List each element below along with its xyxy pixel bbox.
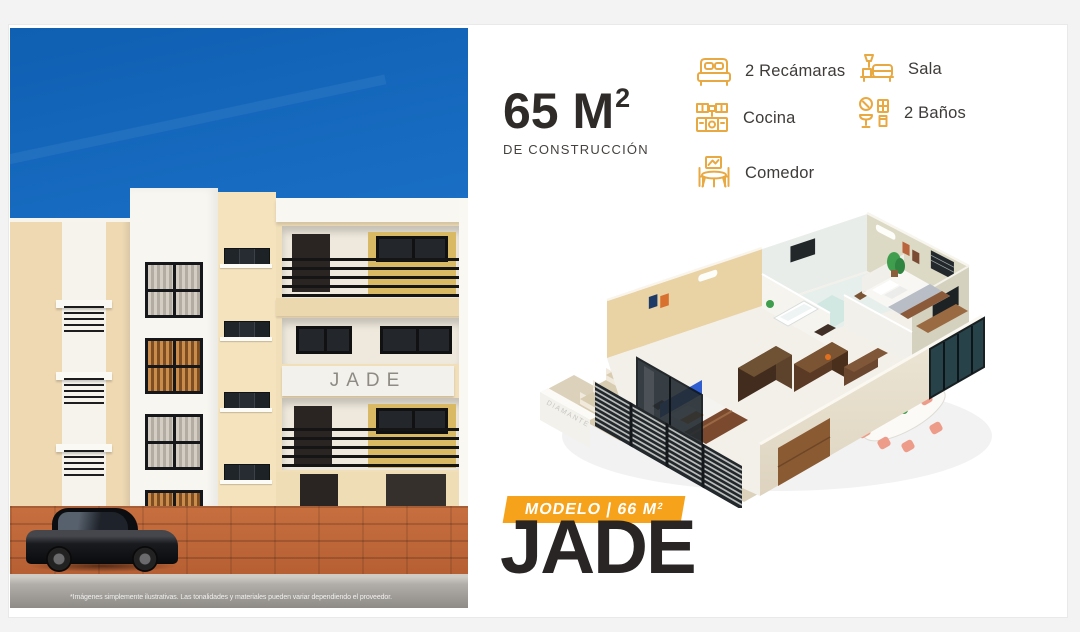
ledge <box>220 480 272 484</box>
balcony-railing <box>64 450 104 476</box>
car-wheel <box>46 546 72 572</box>
building-left-wing <box>10 218 132 512</box>
balcony-railing <box>282 428 462 470</box>
building-right-wing: JADE <box>276 198 468 508</box>
area-superscript: 2 <box>615 83 630 113</box>
building-sign-text: JADE <box>330 370 407 392</box>
slit-window <box>224 321 270 338</box>
balcony-railing <box>64 378 104 404</box>
bed-icon <box>694 51 734 91</box>
feature-livingroom: Sala <box>857 48 942 90</box>
ledge <box>220 337 272 341</box>
window <box>380 326 452 354</box>
building-cream-column <box>218 192 276 508</box>
sofa-icon <box>857 49 897 89</box>
window <box>145 414 203 470</box>
slit-window <box>224 392 270 409</box>
window-lit <box>145 338 203 394</box>
corner-trim <box>459 198 468 508</box>
area-number: 65 M <box>503 83 614 139</box>
parapet <box>276 198 468 222</box>
window <box>296 326 352 354</box>
area-caption: DE CONSTRUCCIÓN <box>503 142 649 157</box>
bath-icon <box>853 93 893 133</box>
feature-label: 2 Recámaras <box>745 62 845 81</box>
feature-bedrooms: 2 Recámaras <box>694 50 845 92</box>
balcony-recess <box>282 226 462 298</box>
slab <box>276 298 468 316</box>
car-windshield <box>58 512 128 530</box>
dining-icon <box>694 153 734 193</box>
area-block: 65 M2 DE CONSTRUCCIÓN <box>503 86 649 157</box>
balcony-recess <box>282 398 462 470</box>
entry-door <box>300 474 338 508</box>
building-photo: JADE *I <box>10 28 468 608</box>
car-wheel <box>132 546 158 572</box>
ledge <box>220 408 272 412</box>
flyer-page: JADE *I <box>0 0 1080 632</box>
kitchen-icon <box>692 98 732 138</box>
entry-door <box>386 474 446 508</box>
building-white-tower <box>130 188 218 508</box>
feature-kitchen: Cocina <box>692 97 796 139</box>
slit-window <box>224 248 270 265</box>
slit-window <box>224 464 270 481</box>
balcony-railing <box>64 306 104 332</box>
feature-label: Comedor <box>745 164 814 183</box>
ground-floor <box>276 472 468 508</box>
model-name: JADE <box>500 510 695 586</box>
feature-dining: Comedor <box>694 152 814 194</box>
window-recess <box>282 318 462 364</box>
balcony-railing <box>282 258 462 298</box>
feature-label: Cocina <box>743 109 796 128</box>
window <box>145 262 203 318</box>
building-sign-band: JADE <box>282 366 454 396</box>
area-value: 65 M2 <box>503 86 649 136</box>
feature-bathrooms: 2 Baños <box>853 92 966 134</box>
floorplan-illustration: DIAMANTE <box>532 196 994 508</box>
parked-car <box>26 480 182 572</box>
feature-label: 2 Baños <box>904 104 966 123</box>
photo-disclaimer: *Imágenes simplemente ilustrativas. Las … <box>70 594 392 601</box>
sidewalk <box>10 574 468 608</box>
ledge <box>220 264 272 268</box>
feature-label: Sala <box>908 60 942 79</box>
